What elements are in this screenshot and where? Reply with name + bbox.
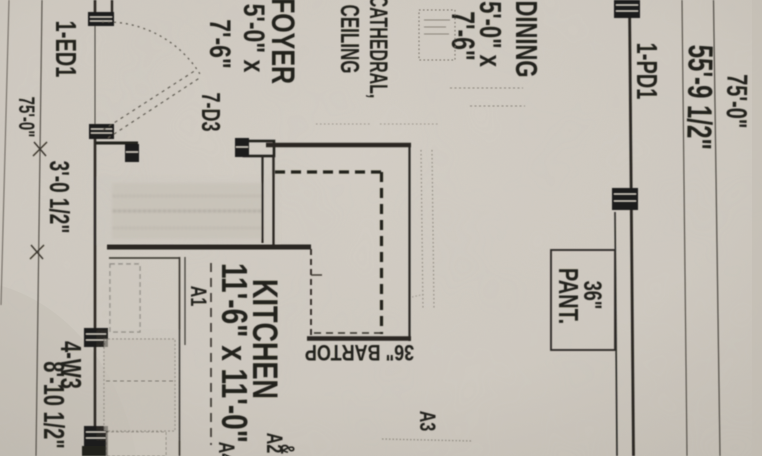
svg-text:3'-0 1/2": 3'-0 1/2" xyxy=(43,161,73,234)
svg-text:1-PD1: 1-PD1 xyxy=(630,43,663,100)
svg-text:75'-0": 75'-0" xyxy=(14,97,38,138)
svg-text:7'-6": 7'-6" xyxy=(203,19,237,69)
svg-text:5'-0" x: 5'-0" x xyxy=(237,4,271,73)
svg-text:11'-6" x 11'-0": 11'-6" x 11'-0" xyxy=(214,263,254,443)
svg-text:DINING: DINING xyxy=(509,1,544,78)
svg-text:7'-6": 7'-6" xyxy=(445,11,481,61)
svg-text:75'-0": 75'-0" xyxy=(720,74,754,129)
svg-text:36" BARTOP: 36" BARTOP xyxy=(305,339,414,363)
svg-text:CEILING: CEILING xyxy=(335,5,365,74)
svg-text:A3: A3 xyxy=(414,411,439,432)
svg-text:7-D3: 7-D3 xyxy=(196,92,225,131)
svg-text:CATHEDRAL,: CATHEDRAL, xyxy=(364,0,391,98)
svg-text:&: & xyxy=(276,444,298,454)
svg-text:8'-10 1/2": 8'-10 1/2" xyxy=(37,361,70,449)
svg-text:1-ED1: 1-ED1 xyxy=(49,21,82,78)
svg-text:A4: A4 xyxy=(213,442,238,456)
svg-text:PANT.: PANT. xyxy=(552,268,583,324)
svg-text:A1: A1 xyxy=(185,286,210,307)
svg-text:55'-9 1/2": 55'-9 1/2" xyxy=(679,44,719,150)
